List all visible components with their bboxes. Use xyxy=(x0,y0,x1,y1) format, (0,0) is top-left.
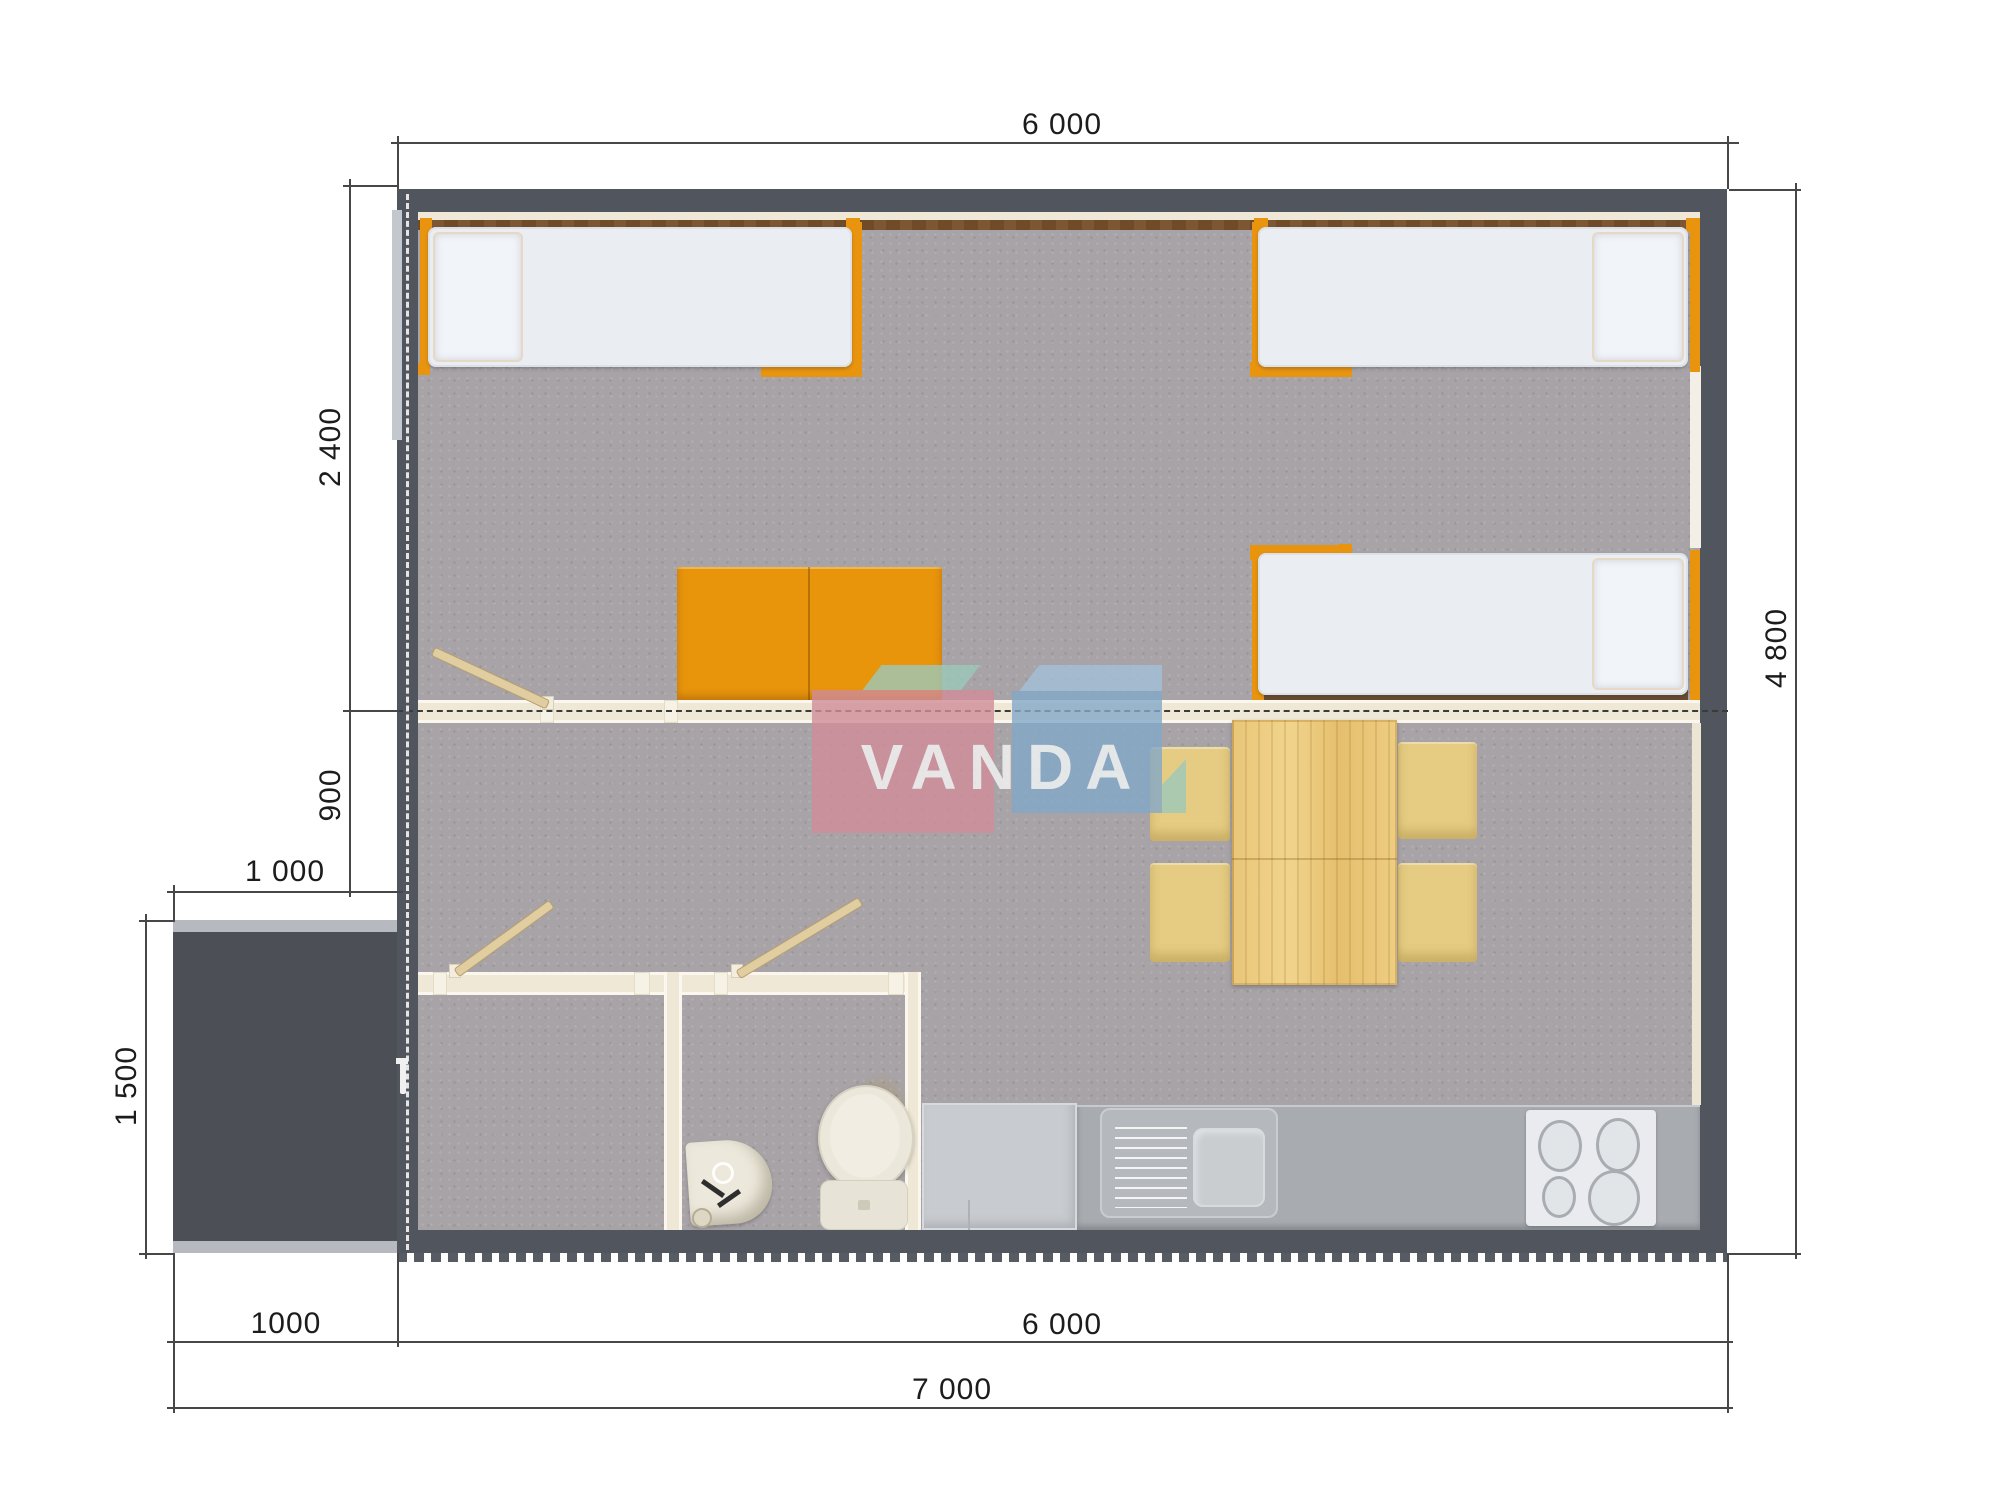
bed-post-icon xyxy=(848,362,862,377)
sink-drain-ring xyxy=(712,1162,734,1184)
entry-door-dashed-line xyxy=(406,194,409,1250)
dim-label-house-depth: 4 800 xyxy=(1760,608,1794,688)
dim-ext-line xyxy=(1727,136,1729,189)
dining-chair xyxy=(1150,863,1230,962)
window-left-wall xyxy=(392,210,402,440)
burner-icon xyxy=(1596,1118,1640,1172)
burner-icon xyxy=(1588,1170,1640,1226)
bed-frame-rail xyxy=(1690,222,1700,372)
soap-bottle-icon xyxy=(692,1208,712,1228)
dim-label-hall-depth: 900 xyxy=(314,768,348,821)
bed-frame-rail xyxy=(1690,550,1700,700)
sink-drainboard xyxy=(1115,1127,1187,1208)
watermark-text: VANDA xyxy=(834,735,1170,799)
bathroom-door-jamb xyxy=(433,972,447,995)
dim-label-house-width-bottom: 6 000 xyxy=(1022,1308,1102,1342)
fridge-appliance xyxy=(922,1103,1077,1230)
dim-line xyxy=(167,1407,1733,1409)
burner-icon xyxy=(1542,1176,1576,1218)
dim-ext-line xyxy=(397,1253,399,1347)
bathroom-door-jamb xyxy=(888,972,904,995)
serrated-roof-edge xyxy=(397,1253,1727,1262)
bed-post-icon xyxy=(418,363,430,375)
dining-chair xyxy=(1398,863,1477,962)
table-grain xyxy=(1232,720,1397,985)
door-handle-icon xyxy=(396,1058,408,1064)
kitchen-sink-basin xyxy=(1193,1128,1265,1207)
floor-plan-canvas: VANDA 6 000 2 400 900 1 000 1 500 4 800 … xyxy=(0,0,2000,1502)
bed-footboard xyxy=(1253,366,1351,377)
dim-label-total-width: 7 000 xyxy=(912,1373,992,1407)
burner-icon xyxy=(1538,1120,1582,1172)
dim-ext-line xyxy=(139,1253,175,1255)
dim-label-bedroom-depth: 2 400 xyxy=(314,407,348,487)
dim-label-house-width-top: 6 000 xyxy=(1022,108,1102,142)
watermark-logo: VANDA xyxy=(810,665,1186,835)
porch-bottom-step xyxy=(173,1241,397,1253)
fridge-seam xyxy=(968,1200,970,1230)
dim-line xyxy=(167,1341,1733,1343)
toilet-flush-button xyxy=(858,1200,870,1210)
dim-ext-line xyxy=(1729,189,1801,191)
dim-ext-line xyxy=(139,920,175,922)
pillow xyxy=(1592,558,1684,690)
dim-ext-line xyxy=(173,885,175,920)
dim-line xyxy=(145,914,147,1259)
window-right-wall-bedroom xyxy=(1690,366,1701,548)
dim-label-porch-depth: 1 500 xyxy=(110,1046,144,1126)
pillow xyxy=(1592,232,1684,362)
dim-ext-line xyxy=(397,136,399,189)
top-wall-liner xyxy=(418,212,1700,220)
porch-top-step xyxy=(173,920,397,932)
logo-blue-top-face xyxy=(996,665,1162,691)
dim-line xyxy=(349,179,351,897)
bathroom-door-jamb xyxy=(714,972,728,995)
dim-ext-line xyxy=(343,185,399,187)
bathroom-door-jamb xyxy=(634,972,650,995)
toilet-lid xyxy=(830,1094,900,1178)
dim-label-porch-width-bottom: 1000 xyxy=(251,1307,322,1341)
dim-ext-line xyxy=(1729,1253,1801,1255)
dim-line xyxy=(167,891,403,893)
window-right-wall-living xyxy=(1692,723,1701,1105)
pillow xyxy=(433,232,523,362)
dim-label-porch-width-top: 1 000 xyxy=(245,855,325,889)
dim-line xyxy=(1795,183,1797,1259)
bathroom-partition-wall xyxy=(664,972,682,1230)
dim-ext-line xyxy=(173,1253,175,1413)
porch xyxy=(173,920,397,1253)
dim-ext-line xyxy=(1727,1253,1729,1413)
dining-chair xyxy=(1398,742,1477,839)
dim-ext-line xyxy=(343,710,399,712)
dim-line xyxy=(391,142,1739,144)
table-seam xyxy=(1232,858,1397,860)
